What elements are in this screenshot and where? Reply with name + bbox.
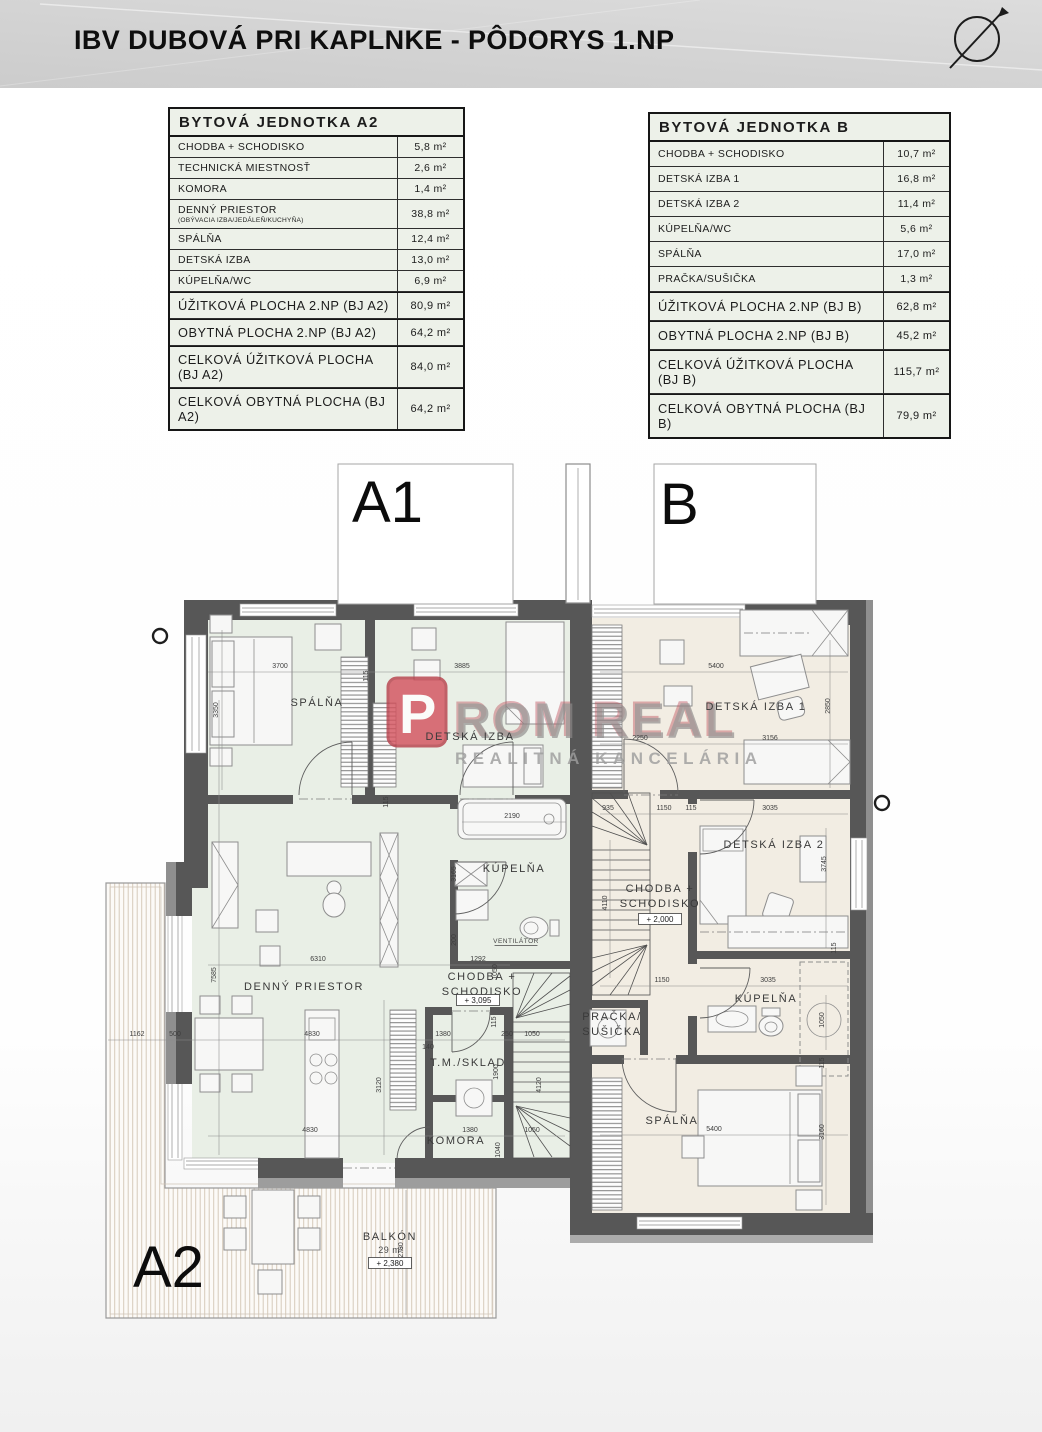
dimension-label: 3700 — [272, 663, 288, 670]
room-label: SPÁLŇA — [290, 696, 343, 709]
dimension-label: 3156 — [762, 735, 778, 742]
dimension-label: 3350 — [213, 702, 220, 718]
dimension-label: 5400 — [706, 1126, 722, 1133]
dimension-label: 935 — [602, 805, 614, 812]
dimension-label: 7585 — [211, 967, 218, 983]
dimension-label: 4830 — [304, 1031, 320, 1038]
dimension-label: 115 — [383, 796, 390, 807]
dimension-label: 6310 — [310, 956, 326, 963]
dimension-label: 140 — [422, 1044, 434, 1051]
dimension-label: 200 — [451, 934, 458, 946]
dimension-label: 1162 — [129, 1031, 144, 1038]
dimension-label: 500 — [169, 1031, 181, 1038]
dimension-label: 3745 — [821, 856, 828, 872]
unit-label-a1: A1 — [352, 470, 423, 535]
level-badge-text: + 2,000 — [647, 915, 674, 924]
room-label: DENNÝ PRIESTOR — [244, 980, 364, 993]
dimension-label: 115 — [363, 670, 370, 681]
dimension-label: 4110 — [602, 895, 609, 910]
dimension-label: 3035 — [762, 805, 778, 812]
dimension-label: 250 — [501, 1031, 513, 1038]
dimension-label: 5400 — [708, 663, 724, 670]
dimension-label: 1150 — [656, 805, 671, 812]
dimension-label: 1040 — [495, 1142, 502, 1158]
dimension-label: 1050 — [524, 1031, 540, 1038]
dimension-label: 1050 — [492, 964, 499, 980]
dimension-label: 3885 — [454, 663, 470, 670]
dimension-label: 115 — [831, 942, 838, 953]
dimension-label: 1900 — [493, 1064, 500, 1080]
dimension-label: 3120 — [376, 1077, 383, 1093]
room-label: BALKÓN — [363, 1230, 417, 1243]
dimension-label: 3160 — [819, 1124, 826, 1140]
room-label: DETSKÁ IZBA — [425, 730, 514, 743]
room-label: SPÁLŇA — [645, 1114, 698, 1127]
misc-label: VENTILÁTOR — [493, 936, 539, 945]
room-label: KÚPELŇA — [483, 862, 546, 875]
dimension-label: 1150 — [654, 977, 669, 984]
dimension-label: 2850 — [825, 698, 832, 714]
dimension-label: 115 — [491, 1016, 498, 1027]
dimension-label: 1050 — [524, 1127, 540, 1134]
dimension-label: 3165 — [451, 866, 458, 882]
dimension-label: 1380 — [435, 1031, 451, 1038]
dimension-label: 4120 — [536, 1077, 543, 1093]
dimension-label: 115 — [819, 1057, 826, 1068]
misc-label: 29 m² — [378, 1245, 404, 1255]
watermark-subtitle: REALITNÁ KANCELÁRIA — [455, 749, 763, 768]
floor-plan: P ROM REAL ROM REAL REALITNÁ KANCELÁRIA … — [0, 0, 1042, 1432]
dimension-label: 1050 — [819, 1012, 826, 1028]
dimension-label: 1292 — [470, 956, 486, 963]
room-label: KÚPELŇA — [735, 992, 798, 1005]
dimension-label: 2250 — [632, 735, 648, 742]
room-label: KOMORA — [427, 1135, 486, 1147]
dimension-label: 115 — [685, 805, 696, 812]
dimension-label: 4830 — [302, 1127, 318, 1134]
level-badge-text: + 3,095 — [465, 996, 492, 1005]
dimension-label: 1380 — [462, 1127, 478, 1134]
level-badge-text: + 2,380 — [377, 1259, 404, 1268]
room-label: DETSKÁ IZBA 1 — [706, 700, 807, 713]
room-label: DETSKÁ IZBA 2 — [724, 838, 825, 851]
unit-label-b: B — [660, 472, 699, 537]
dimension-label: 2190 — [504, 813, 520, 820]
dimension-label: 3035 — [760, 977, 776, 984]
unit-label-a2: A2 — [133, 1235, 204, 1300]
